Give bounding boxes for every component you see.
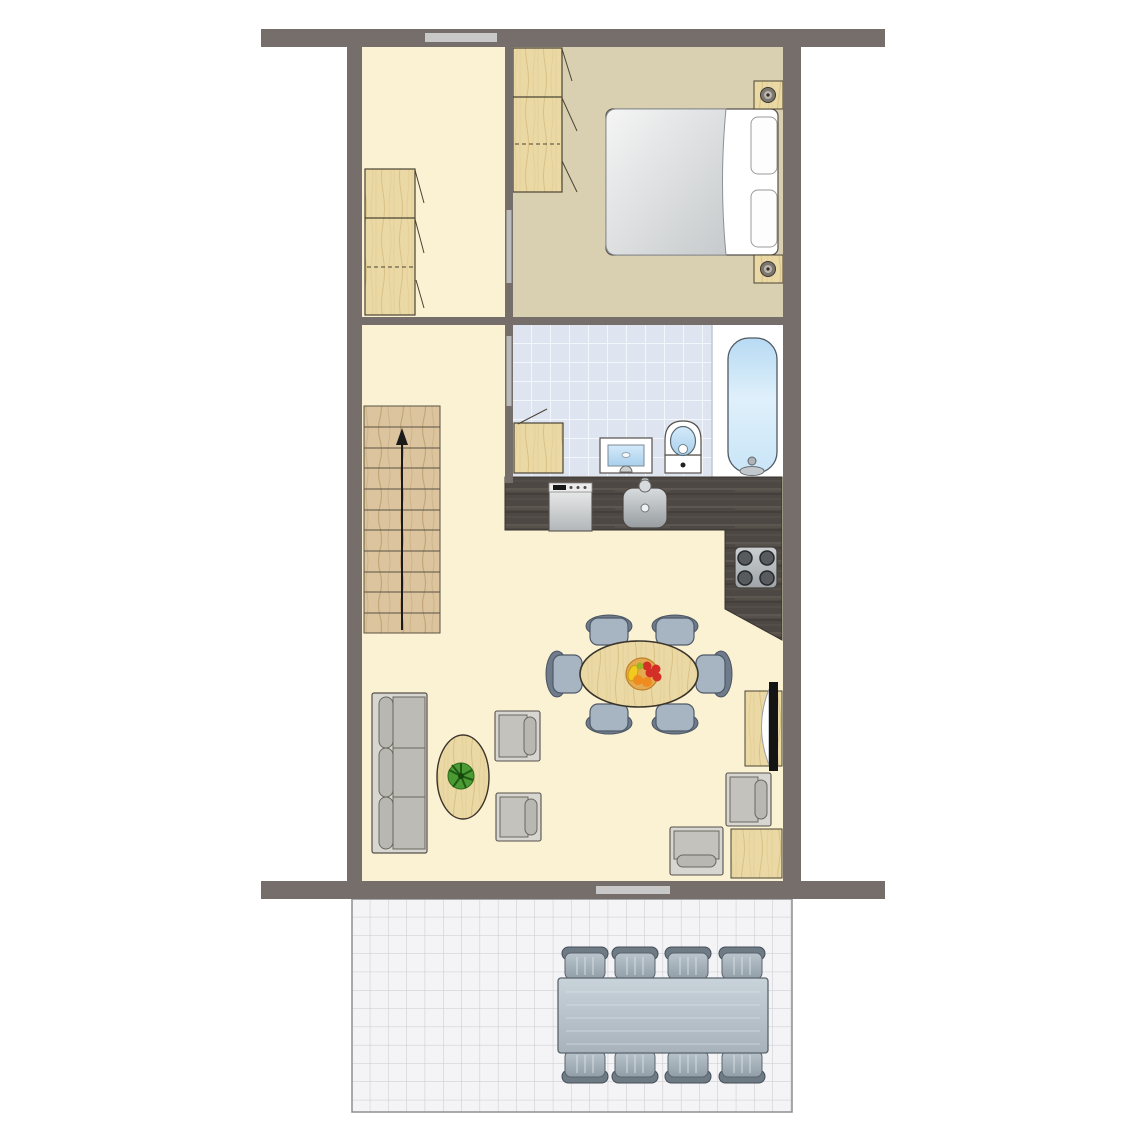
lounge-armchair-cushion bbox=[677, 855, 716, 867]
stove-burner-3 bbox=[738, 571, 752, 585]
dining-chair-2-seat bbox=[656, 618, 694, 645]
bathtub bbox=[728, 338, 777, 473]
washbasin-drain bbox=[622, 453, 630, 458]
sofa-back-cushion-1 bbox=[379, 697, 393, 748]
sofa-back-cushion-2 bbox=[379, 748, 393, 797]
dishwasher-display bbox=[553, 485, 566, 490]
dining-chair-4-seat bbox=[656, 704, 694, 731]
wall-left bbox=[347, 29, 362, 881]
kitchen-sink-faucet bbox=[639, 480, 651, 492]
wall-interior-horizontal bbox=[362, 317, 783, 325]
armchair-1-cushion bbox=[524, 717, 536, 755]
floor-plan-canvas bbox=[0, 0, 1145, 1145]
dining-chair-6-seat bbox=[696, 655, 725, 693]
bed-pillow-bottom bbox=[751, 190, 777, 247]
dining-chair-1-seat bbox=[590, 618, 628, 645]
stove-burner-4 bbox=[760, 571, 774, 585]
bedroom-doorway bbox=[507, 210, 512, 283]
terrace-table bbox=[558, 978, 768, 1053]
double-bed-duvet bbox=[606, 109, 726, 255]
floor-plan-page bbox=[0, 0, 1145, 1145]
tv-armchair-cushion bbox=[755, 780, 767, 819]
armchair-2-seat bbox=[500, 797, 528, 837]
fruit-oranges bbox=[638, 680, 647, 682]
bed-pillow-top bbox=[751, 117, 777, 174]
bedside-lamp-top-bulb bbox=[766, 93, 769, 96]
sofa-seats bbox=[393, 697, 425, 849]
bathtub-faucet bbox=[748, 457, 756, 465]
stove-burner-2 bbox=[760, 551, 774, 565]
wall-bottom bbox=[261, 881, 885, 899]
tv-armchair-seat bbox=[730, 777, 758, 822]
bathtub-faucet-base bbox=[740, 467, 764, 476]
wall-right bbox=[783, 29, 801, 881]
terrace-doorway bbox=[596, 886, 670, 894]
kitchen-sink-drain bbox=[641, 504, 649, 512]
plant-center bbox=[458, 773, 464, 779]
window-top bbox=[425, 33, 497, 42]
fruit-apples bbox=[647, 666, 657, 677]
toilet-seat-inner bbox=[679, 445, 688, 454]
bedside-lamp-bottom-bulb bbox=[766, 267, 769, 270]
toilet-flush-button bbox=[681, 463, 686, 468]
stove-burner-1 bbox=[738, 551, 752, 565]
armchair-2-cushion bbox=[525, 799, 537, 835]
sofa-back-cushion-3 bbox=[379, 797, 393, 849]
tv bbox=[769, 682, 778, 771]
dining-chair-3-seat bbox=[590, 704, 628, 731]
dining-chair-5-seat bbox=[553, 655, 582, 693]
bathroom-doorway bbox=[507, 336, 512, 406]
fruit-grapes bbox=[637, 663, 644, 670]
bathroom-cabinet bbox=[514, 423, 563, 473]
bedroom-wardrobe bbox=[513, 48, 562, 192]
side-table bbox=[731, 829, 782, 878]
storage-wardrobe bbox=[365, 169, 415, 315]
armchair-1-seat bbox=[499, 715, 527, 757]
